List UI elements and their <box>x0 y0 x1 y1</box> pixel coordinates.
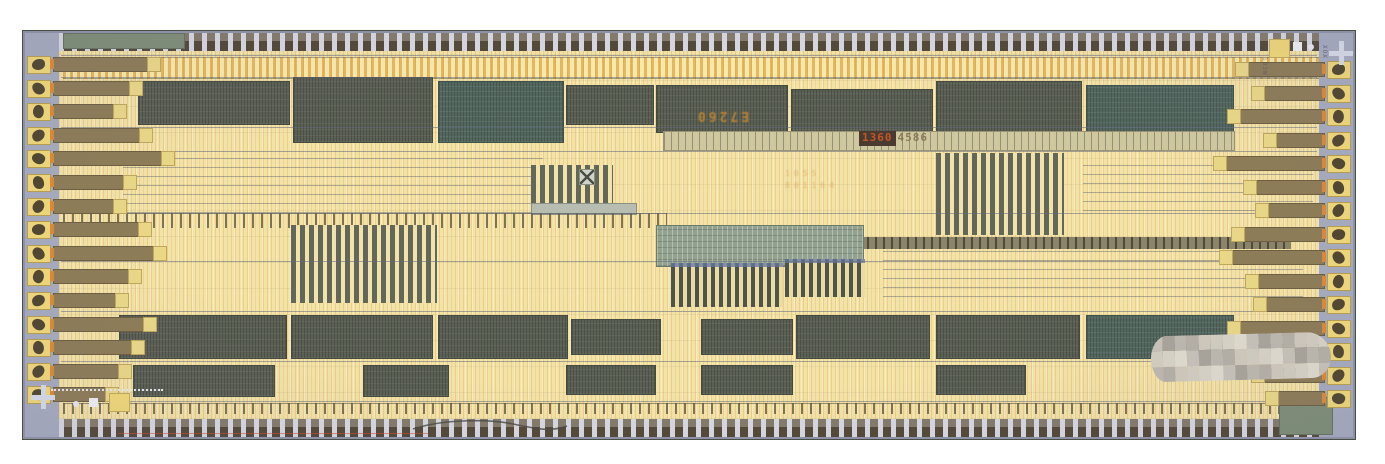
trace-end-cap <box>123 175 137 190</box>
probe-mark <box>1330 320 1347 337</box>
die-marking-vertical-topright: XOX <box>1321 45 1328 59</box>
trace-end-cap <box>113 199 127 214</box>
probe-mark <box>31 245 47 262</box>
trace-end-cap <box>1227 109 1241 124</box>
pad-connector <box>1322 393 1326 403</box>
routing-channel-line <box>61 361 1317 362</box>
redaction-pixel <box>1282 333 1294 349</box>
probe-mark <box>30 128 46 143</box>
trace-end-cap <box>1213 156 1227 171</box>
circuit-block-stripes <box>531 165 613 203</box>
redaction-pixel <box>1210 334 1222 350</box>
circuit-block-stripes <box>291 225 437 303</box>
calibration-dot-bottom-left <box>73 401 79 407</box>
redaction-pixel <box>1187 350 1199 366</box>
trace-end-cap <box>1231 227 1245 242</box>
pad-connector <box>50 319 54 329</box>
circuit-block-dark <box>363 365 449 397</box>
trace-end-cap <box>143 317 157 332</box>
circuit-block-ticks <box>63 403 1293 414</box>
redaction-pixel <box>1234 334 1246 350</box>
trace-end-cap <box>113 104 127 119</box>
redacted-pixelated-region <box>1150 332 1331 383</box>
redaction-pixel <box>1259 364 1271 380</box>
pad-connector <box>1322 182 1326 192</box>
pad-connector <box>1322 276 1326 286</box>
redaction-pixel <box>1199 365 1211 381</box>
pad-connector <box>1322 135 1326 145</box>
pad-trace <box>53 57 159 72</box>
bond-pad-l2 <box>27 80 51 98</box>
probe-mark <box>1332 344 1344 358</box>
pad-trace <box>53 81 141 96</box>
bond-pad-r12 <box>1327 320 1351 338</box>
routing-channel-line <box>61 261 1317 262</box>
circuit-block-dark <box>936 315 1080 359</box>
redaction-pixel <box>1259 349 1271 365</box>
redaction-pixel <box>1271 364 1283 380</box>
circuit-block-stripes <box>936 153 1064 235</box>
routing-channel-line <box>61 213 1317 214</box>
pad-trace <box>1213 156 1325 171</box>
probe-mark <box>32 59 45 70</box>
probe-mark <box>1331 109 1345 125</box>
trace-end-cap <box>1251 86 1265 101</box>
redaction-pixel <box>1258 333 1270 349</box>
redaction-pixel <box>1306 332 1318 348</box>
circuit-block-dark <box>133 365 275 397</box>
circuit-block-dark <box>138 81 290 125</box>
trace-end-cap <box>1263 133 1277 148</box>
bottom-pad-comb <box>59 419 1319 437</box>
trace-end-cap <box>139 128 153 143</box>
probe-mark <box>1332 180 1344 194</box>
redaction-pixel <box>1247 364 1259 380</box>
trace-end-cap <box>138 222 152 237</box>
die-marking-vertical-right: 103W <box>1261 57 1268 75</box>
probe-mark <box>31 104 45 120</box>
pad-connector <box>50 366 54 376</box>
bond-pad-l14 <box>27 363 51 381</box>
redaction-pixel <box>1294 332 1306 348</box>
circuit-block-comb <box>663 131 1235 151</box>
redaction-pixel <box>1223 365 1235 381</box>
x-alignment-marker-icon <box>579 169 595 185</box>
redaction-pixel <box>1295 348 1307 364</box>
circuit-block-hlines <box>123 157 543 213</box>
circuit-block-routing <box>63 57 1319 79</box>
redaction-pixel <box>1246 334 1258 350</box>
trace-end-cap <box>1243 180 1257 195</box>
pad-trace <box>53 317 155 332</box>
bond-pad-r10 <box>1327 273 1351 291</box>
probe-mark <box>1330 367 1347 383</box>
pad-connector <box>50 342 54 352</box>
pad-connector <box>50 130 54 140</box>
pad-connector <box>50 106 54 116</box>
bond-pad-l8 <box>27 221 51 239</box>
trace-end-cap <box>147 57 161 72</box>
pad-connector <box>1322 323 1326 333</box>
redaction-pixel <box>1307 363 1319 379</box>
pad-trace <box>53 222 150 237</box>
probe-mark <box>31 269 47 286</box>
probe-mark <box>30 80 47 97</box>
bond-pad-r5 <box>1327 155 1351 173</box>
redaction-pixel <box>1211 350 1223 366</box>
redaction-pixel <box>1235 349 1247 365</box>
routing-channel-line <box>61 127 1317 128</box>
pad-connector <box>1322 88 1326 98</box>
probe-mark <box>31 294 46 307</box>
photo-canvas: E7260 1360 4586 1055 801164 XOX 103W <box>0 0 1385 464</box>
trace-end-cap <box>1219 250 1233 265</box>
trace-end-cap <box>129 81 143 96</box>
pad-connector <box>1322 64 1326 74</box>
redaction-pixel <box>1199 350 1211 366</box>
bond-pad-r7 <box>1327 202 1351 220</box>
pad-connector <box>1322 299 1326 309</box>
probe-mark <box>32 341 44 355</box>
pad-connector <box>50 295 54 305</box>
alignment-cross-top-right-icon <box>1329 41 1353 65</box>
pad-connector <box>1322 205 1326 215</box>
bond-pad-l12 <box>27 316 51 334</box>
circuit-block-green <box>63 33 185 49</box>
circuit-block-dark <box>936 365 1026 395</box>
redaction-pixel <box>1271 348 1283 364</box>
routing-channel-line <box>61 151 1317 152</box>
bond-pad-r8 <box>1327 226 1351 244</box>
calibration-large-square-top-right <box>1269 39 1290 58</box>
probe-mark <box>1330 84 1347 101</box>
probe-mark <box>1331 227 1346 240</box>
redaction-pixel <box>1223 349 1235 365</box>
probe-mark <box>32 176 44 190</box>
pad-trace <box>1227 109 1325 124</box>
redaction-pixel <box>1235 364 1247 380</box>
redaction-pixel <box>1319 347 1331 363</box>
circuit-block-dark <box>701 365 793 395</box>
probe-mark <box>1330 202 1347 219</box>
trace-end-cap <box>115 293 129 308</box>
bond-pad-r14 <box>1327 367 1351 385</box>
pad-trace <box>53 340 143 355</box>
redaction-pixel <box>1247 349 1259 365</box>
calibration-small-square-bottom-left <box>89 398 98 407</box>
bond-pad-r11 <box>1327 296 1351 314</box>
bond-pad-r2 <box>1327 85 1351 103</box>
bond-pad-l11 <box>27 292 51 310</box>
redaction-pixel <box>1295 363 1307 379</box>
bond-pad-l10 <box>27 268 51 286</box>
trace-end-cap <box>1245 274 1259 289</box>
probe-mark <box>30 316 47 333</box>
redaction-pixel <box>1162 336 1174 352</box>
circuit-block-dark <box>566 365 656 395</box>
redaction-pixel <box>1174 335 1186 351</box>
circuit-block-dark <box>566 85 654 125</box>
redaction-pixel <box>1187 366 1199 382</box>
probe-mark <box>30 198 47 215</box>
bond-pad-r9 <box>1327 249 1351 267</box>
pad-connector <box>50 83 54 93</box>
probe-mark <box>1330 133 1346 148</box>
pad-connector <box>50 177 54 187</box>
bond-pad-r15 <box>1327 390 1351 408</box>
pad-connector <box>50 248 54 258</box>
pad-connector <box>1322 252 1326 262</box>
circuit-block-dark <box>791 89 933 137</box>
routing-channel-line <box>61 77 1317 78</box>
trace-end-cap <box>118 364 132 379</box>
redaction-pixel <box>1283 363 1295 379</box>
redaction-pixel <box>1283 348 1295 364</box>
circuit-block-teal <box>438 81 564 143</box>
redaction-pixel <box>1163 351 1175 367</box>
die-marking-faint-1: 1055 <box>785 169 820 178</box>
bond-pad-l6 <box>27 174 51 192</box>
redaction-pixel <box>1211 365 1223 381</box>
routing-channel-line <box>61 311 1317 312</box>
circuit-block-dark <box>293 77 433 143</box>
die-marking-serial: 1360 4586 <box>859 131 928 146</box>
probe-mark <box>1330 155 1347 171</box>
pad-trace <box>53 269 140 284</box>
trace-end-cap <box>1255 203 1269 218</box>
bond-pad-l9 <box>27 245 51 263</box>
scratch-artifact <box>411 417 571 433</box>
probe-mark <box>1331 249 1347 266</box>
die-marking-serial-plain: 4586 <box>898 131 929 146</box>
circuit-block-dark <box>291 315 433 359</box>
calibration-small-square-top-right <box>1293 42 1302 51</box>
trace-end-cap <box>1235 62 1249 77</box>
calibration-dotted-line <box>51 389 163 391</box>
pad-connector <box>1322 158 1326 168</box>
die-marking-faint-2: 801164 <box>785 181 838 190</box>
pad-connector <box>50 153 54 163</box>
probe-mark <box>1331 298 1346 311</box>
pad-trace <box>53 151 173 166</box>
redaction-pixel <box>1198 335 1210 351</box>
red-line-artifact <box>118 433 428 434</box>
routing-channel-line <box>61 55 1317 56</box>
probe-mark <box>1332 64 1345 75</box>
redaction-pixel <box>1163 366 1175 382</box>
trace-end-cap <box>161 151 175 166</box>
bond-pad-l4 <box>27 127 51 145</box>
redaction-pixel <box>1270 333 1282 349</box>
pad-connector <box>50 201 54 211</box>
pad-connector <box>50 59 54 69</box>
bond-pad-l7 <box>27 198 51 216</box>
probe-mark <box>30 363 47 379</box>
circuit-block-dark <box>701 319 793 355</box>
die-marking-mirrored: E7260 <box>663 105 781 123</box>
trace-end-cap <box>153 246 167 261</box>
pad-trace <box>53 128 151 143</box>
redaction-pixel <box>1175 366 1187 382</box>
circuit-block-dark <box>796 315 930 359</box>
pad-connector <box>50 224 54 234</box>
redaction-pixel <box>1151 351 1163 367</box>
pad-trace <box>53 246 165 261</box>
bond-pad-r4 <box>1327 132 1351 150</box>
circuit-block-dark <box>438 315 568 359</box>
probe-mark <box>30 151 47 167</box>
bond-pad-r6 <box>1327 179 1351 197</box>
probe-mark <box>1330 391 1346 406</box>
top-pad-comb <box>59 33 1319 51</box>
bond-pad-l3 <box>27 103 51 121</box>
pad-connector <box>1322 229 1326 239</box>
trace-end-cap <box>131 340 145 355</box>
redaction-pixel <box>1175 351 1187 367</box>
circuit-block-fingers <box>671 263 783 307</box>
trace-end-cap <box>1253 297 1267 312</box>
calibration-large-square-bottom-left <box>109 393 130 412</box>
routing-channel-line <box>61 401 1317 402</box>
die-photo: E7260 1360 4586 1055 801164 XOX 103W <box>22 30 1356 440</box>
probe-mark <box>31 223 46 236</box>
die-marking-serial-boxed: 1360 <box>859 131 896 146</box>
bond-pad-r3 <box>1327 108 1351 126</box>
bond-pad-l5 <box>27 150 51 168</box>
calibration-dot-top-right <box>1308 44 1314 50</box>
trace-end-cap <box>128 269 142 284</box>
redaction-pixel <box>1186 335 1198 351</box>
redaction-pixel <box>1307 347 1319 363</box>
probe-mark <box>1331 273 1347 290</box>
redaction-pixel <box>1222 334 1234 350</box>
circuit-block-fingers <box>785 259 865 297</box>
trace-end-cap <box>1265 391 1279 406</box>
pad-connector <box>1322 111 1326 121</box>
circuit-block-dark <box>571 319 661 355</box>
pad-trace <box>1231 227 1325 242</box>
pad-connector <box>50 271 54 281</box>
bond-pad-l13 <box>27 339 51 357</box>
pad-trace <box>1219 250 1325 265</box>
bond-pad-l1 <box>27 56 51 74</box>
